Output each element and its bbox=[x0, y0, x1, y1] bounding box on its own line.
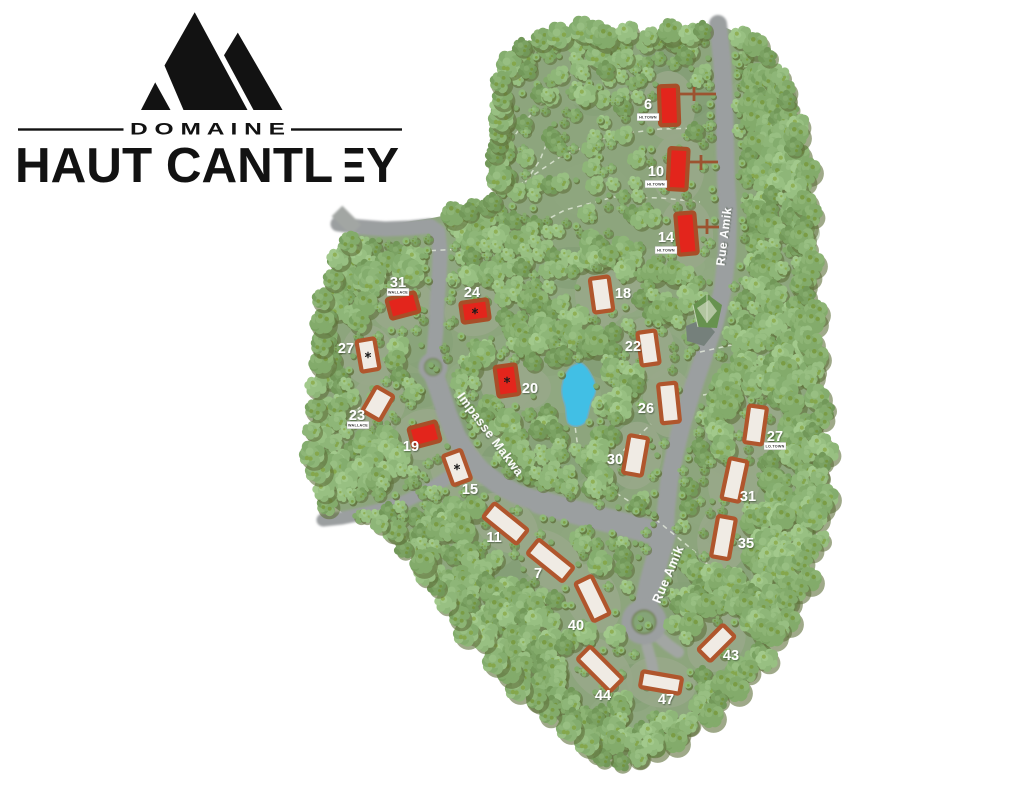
svg-text:HI.TOWN: HI.TOWN bbox=[647, 183, 665, 187]
svg-text:47: 47 bbox=[658, 692, 674, 708]
svg-text:HI.TOWN: HI.TOWN bbox=[657, 249, 675, 253]
svg-text:27: 27 bbox=[338, 341, 354, 357]
svg-text:35: 35 bbox=[738, 536, 754, 552]
svg-text:44: 44 bbox=[595, 688, 611, 704]
svg-text:19: 19 bbox=[403, 439, 419, 455]
svg-text:6: 6 bbox=[644, 97, 652, 113]
svg-text:7: 7 bbox=[534, 566, 542, 582]
svg-text:18: 18 bbox=[615, 286, 631, 302]
svg-text:HI.TOWN: HI.TOWN bbox=[639, 116, 657, 120]
svg-text:10: 10 bbox=[648, 164, 664, 180]
svg-text:43: 43 bbox=[723, 648, 739, 664]
svg-text:D O M A I N E: D O M A I N E bbox=[130, 120, 285, 139]
svg-text:WALLACE: WALLACE bbox=[348, 424, 368, 428]
svg-text:40: 40 bbox=[568, 618, 584, 634]
svg-text:24: 24 bbox=[464, 285, 480, 301]
svg-text:22: 22 bbox=[625, 339, 641, 355]
svg-text:WALLACE: WALLACE bbox=[388, 291, 408, 295]
svg-text:14: 14 bbox=[658, 230, 674, 246]
svg-text:31: 31 bbox=[740, 489, 756, 505]
svg-text:LO.TOWN: LO.TOWN bbox=[765, 445, 784, 449]
svg-text:15: 15 bbox=[462, 482, 478, 498]
svg-text:11: 11 bbox=[486, 530, 501, 546]
svg-text:30: 30 bbox=[607, 452, 623, 468]
svg-text:20: 20 bbox=[522, 381, 538, 397]
svg-text:26: 26 bbox=[638, 401, 654, 417]
